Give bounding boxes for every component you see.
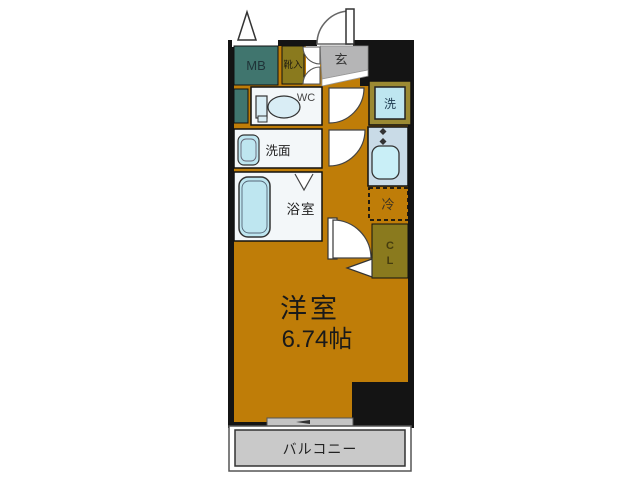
floorplan-drawing: 玄 MB 靴入 WC 洗面 浴室 — [0, 0, 640, 480]
pipe-space — [234, 89, 248, 123]
shoe-cabinet: 靴入 — [282, 46, 304, 84]
wc-room: WC — [251, 87, 322, 125]
shoe-cabinet-label: 靴入 — [283, 59, 303, 71]
fridge-label: 冷 — [381, 197, 394, 212]
floorplan-canvas: 玄 MB 靴入 WC 洗面 浴室 — [0, 0, 640, 480]
kitchen-sink-icon — [372, 146, 399, 179]
meter-box-label: MB — [246, 58, 266, 73]
entrance-door-arc — [317, 11, 350, 44]
entrance-door-leaf — [346, 9, 354, 44]
washroom-label: 洗面 — [265, 144, 290, 158]
closet: C L — [372, 224, 408, 278]
entrance-door — [317, 9, 354, 47]
toilet-tank-icon — [256, 96, 267, 118]
washer-label: 洗 — [384, 97, 396, 111]
washer-box: 洗 — [369, 81, 411, 125]
bottom-right-void — [352, 382, 414, 422]
genkan-label: 玄 — [334, 52, 347, 67]
room-size-label: 6.74帖 — [282, 326, 353, 353]
balcony: バルコニー — [229, 426, 411, 471]
triangle-marker — [238, 12, 256, 40]
toilet-bowl-icon — [268, 96, 300, 118]
balcony-window — [267, 418, 353, 426]
toilet-flush-icon — [258, 116, 267, 122]
closet-label-c: C — [386, 240, 394, 252]
balcony-label: バルコニー — [283, 441, 358, 457]
kitchen-unit — [368, 127, 408, 186]
wc-label: WC — [297, 92, 315, 104]
bathtub-icon — [239, 177, 270, 237]
meter-box: MB — [234, 46, 278, 85]
washroom: 洗面 — [234, 129, 322, 168]
room-name-label: 洋室 — [280, 294, 340, 324]
bathroom-label: 浴室 — [287, 201, 316, 217]
bathroom: 浴室 — [234, 172, 322, 241]
closet-label-l: L — [387, 255, 394, 267]
